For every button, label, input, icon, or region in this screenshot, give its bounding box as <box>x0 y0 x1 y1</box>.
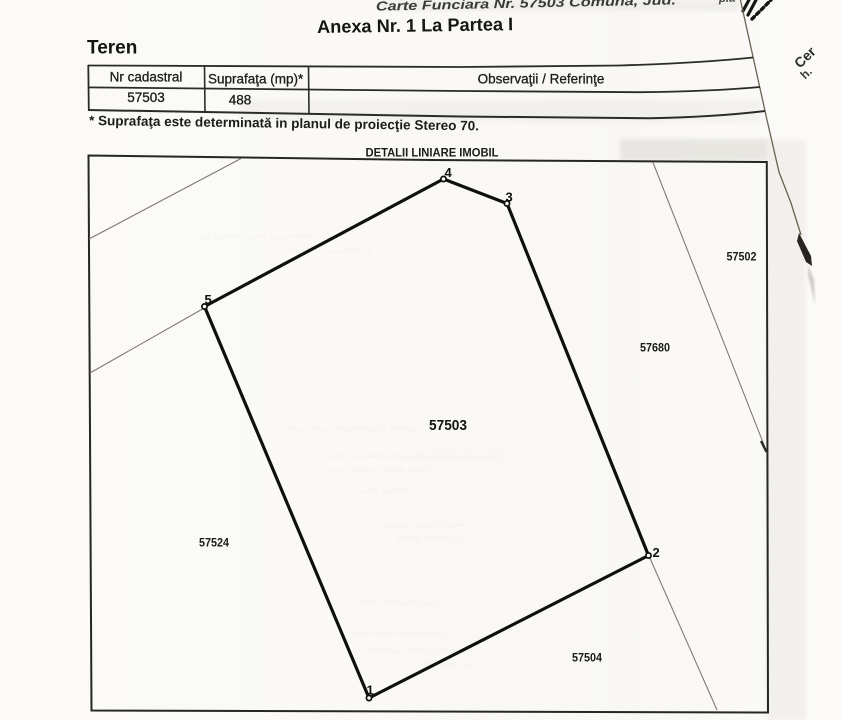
svg-text:3: 3 <box>506 190 513 205</box>
svg-text:..-- ..--.-: ..-- ..--.- <box>362 485 411 494</box>
svg-text:--.. .--... .---- ..-..: --.. .--... .---- ..-.. <box>330 465 431 474</box>
svg-text:4: 4 <box>445 165 453 180</box>
svg-text:57502: 57502 <box>727 250 757 264</box>
svg-text:57503: 57503 <box>127 90 165 105</box>
svg-text:1: 1 <box>367 683 374 698</box>
svg-text:Anexa Nr. 1 La Partea I: Anexa Nr. 1 La Partea I <box>317 14 513 37</box>
svg-text:.. ..-- ....--.-..--...--..-.-: .. ..-- ....--.-..--...--..-.-.-..-.. ..… <box>317 451 501 460</box>
svg-text:Teren: Teren <box>87 38 137 59</box>
svg-text:2: 2 <box>653 545 660 560</box>
svg-text:..--- .-.-- ..: ..--- .-.-- .. <box>398 533 460 542</box>
svg-text:.--.. -.-..-.. ...-: .--.. -.-..-.. ...- <box>360 597 443 606</box>
svg-text:Nr cadastral: Nr cadastral <box>110 70 183 85</box>
svg-text:57680: 57680 <box>640 341 670 355</box>
svg-text:pla: pla <box>718 0 736 5</box>
svg-text:.. ...--.. ..-- ....-..--.: .. ...--.. ..-- ....-..--. .. <box>202 231 328 240</box>
svg-text:Observaţii / Referinţe: Observaţii / Referinţe <box>478 72 605 87</box>
svg-text:.--.. ..-...--...-.-...- ---: .--.. ..-...--...-.-...- ---... <box>283 423 419 432</box>
svg-text:57503: 57503 <box>429 418 467 434</box>
svg-text:-.--. ...-.. .-.--: -.--. ...-.. .-.-- <box>386 520 465 529</box>
svg-text:DETALII LINIARE IMOBIL: DETALII LINIARE IMOBIL <box>366 146 499 160</box>
svg-text:57524: 57524 <box>199 536 229 550</box>
svg-text:57504: 57504 <box>572 651 602 665</box>
svg-text:5: 5 <box>205 292 212 307</box>
svg-text:..-.-- ..--- .-..--.-..: ..-.-- ..--- .-..--.-.. <box>345 628 447 637</box>
svg-text:488: 488 <box>229 93 252 108</box>
svg-text:Suprafaţa (mp)*: Suprafaţa (mp)* <box>208 72 304 87</box>
